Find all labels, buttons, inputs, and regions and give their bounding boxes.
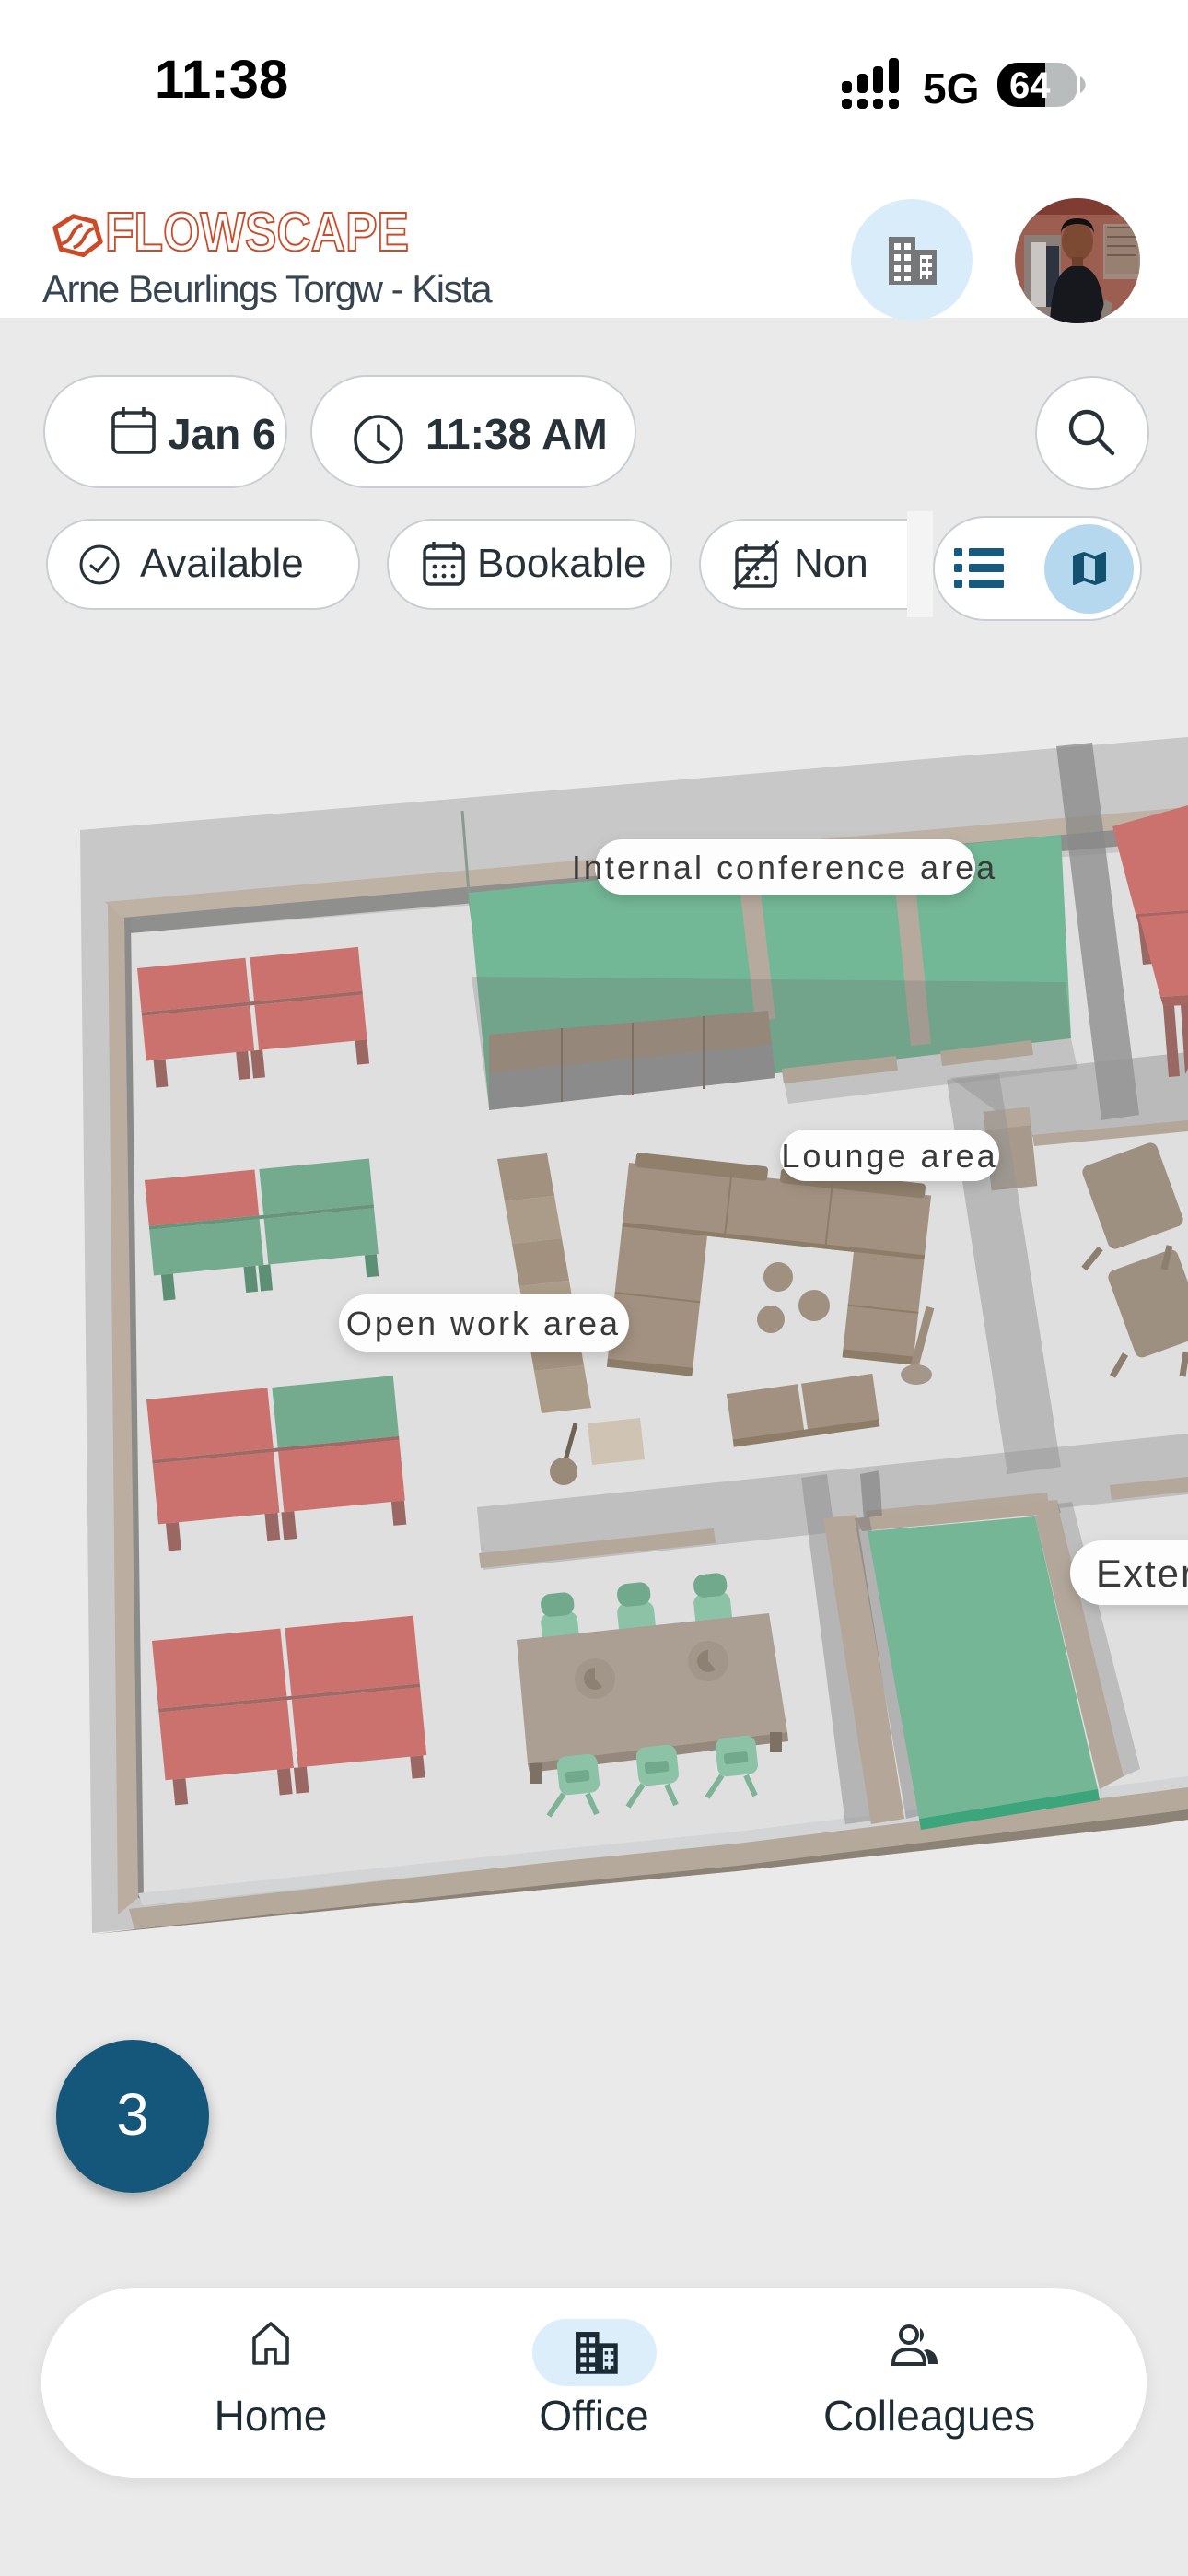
svg-text:FLOWSCAPE: FLOWSCAPE (105, 202, 409, 263)
svg-text:5G: 5G (923, 64, 979, 112)
svg-text:64: 64 (1009, 65, 1051, 106)
svg-text:Extern: Extern (1096, 1551, 1188, 1595)
svg-text:Internal conference area: Internal conference area (572, 849, 997, 886)
svg-text:Lounge area: Lounge area (781, 1137, 997, 1175)
svg-text:Open work area: Open work area (346, 1305, 621, 1342)
